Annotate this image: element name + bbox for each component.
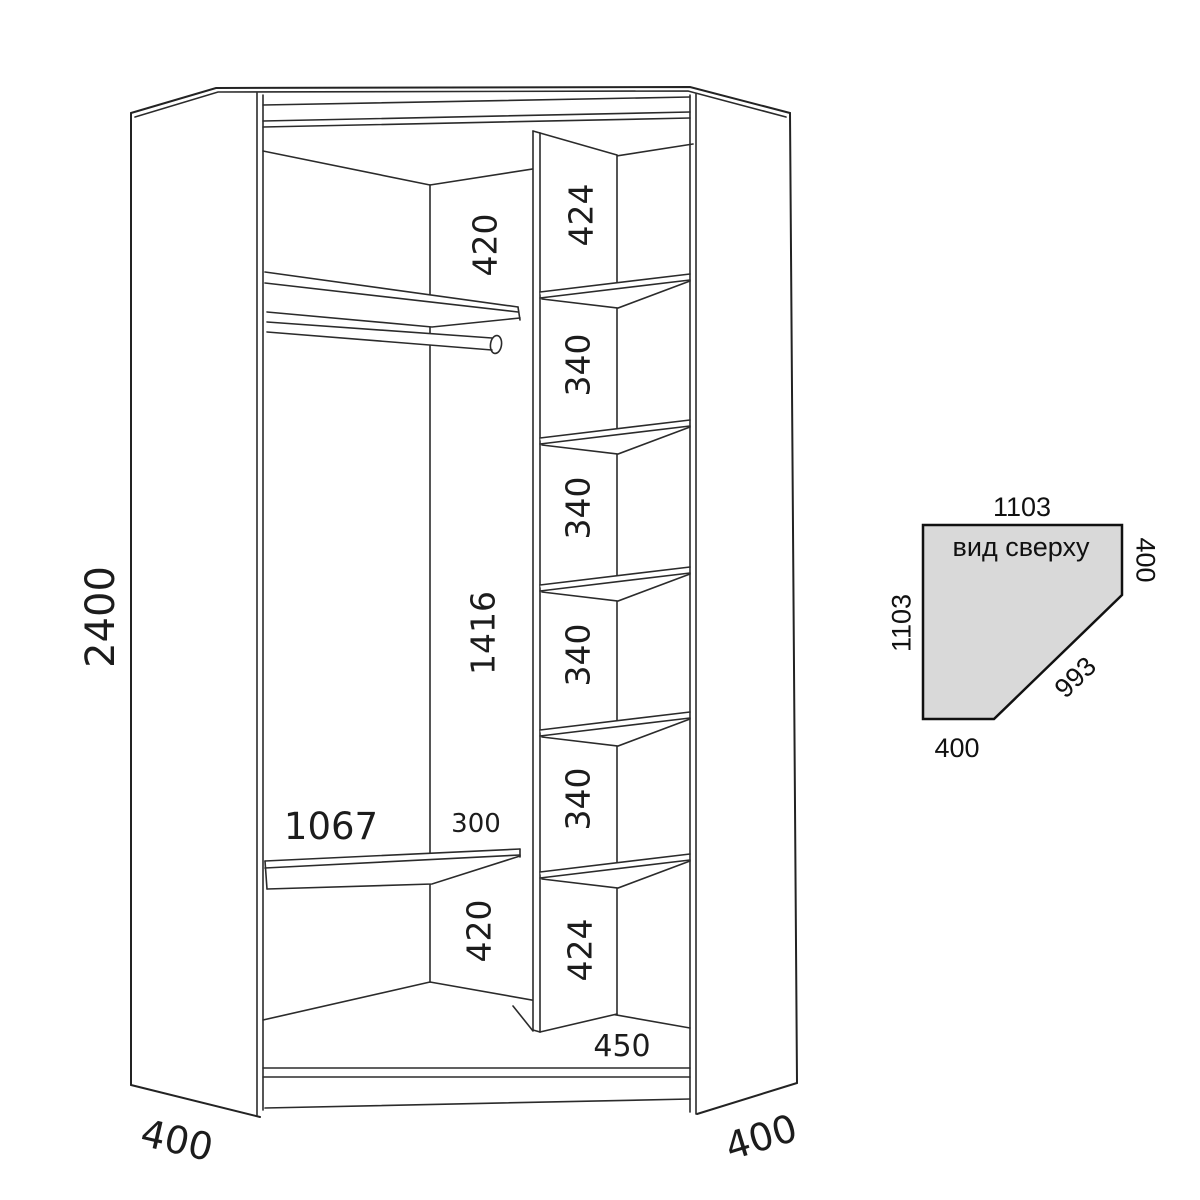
dim-right-col-0: 424 — [562, 184, 601, 247]
topview-dim-right: 400 — [1131, 537, 1161, 582]
corner-wardrobe-diagram: 2400 420 1416 420 1067 300 424 340 340 3… — [0, 0, 1200, 1200]
dim-right-col-1: 340 — [559, 334, 598, 397]
dim-bottom-space: 420 — [460, 900, 499, 963]
top-panel — [131, 87, 790, 127]
dim-right-col-4: 340 — [559, 768, 598, 831]
top-view: 1103 вид сверху 400 1103 993 400 — [886, 492, 1160, 763]
topview-dim-left: 1103 — [886, 594, 916, 652]
topview-dim-bottom: 400 — [934, 733, 979, 763]
top-shelf-board — [265, 272, 520, 327]
hanging-rod — [267, 322, 503, 354]
topview-title: вид сверху — [953, 532, 1090, 562]
dim-right-col-2: 340 — [559, 477, 598, 540]
dim-hanging-height: 1416 — [464, 591, 503, 675]
topview-dim-top: 1103 — [993, 492, 1051, 522]
dim-bottom-shelf-width: 450 — [593, 1029, 650, 1064]
dim-top-space: 420 — [466, 214, 505, 277]
dim-total-height: 2400 — [78, 566, 124, 668]
right-side-panel — [690, 94, 797, 1114]
dim-right-side-width: 400 — [720, 1106, 802, 1169]
dim-right-col-3: 340 — [559, 624, 598, 687]
dim-shelf-width: 1067 — [284, 805, 378, 848]
diagram-canvas: 2400 420 1416 420 1067 300 424 340 340 3… — [0, 0, 1200, 1200]
left-side-panel — [131, 93, 263, 1117]
front-view: 2400 420 1416 420 1067 300 424 340 340 3… — [78, 87, 802, 1170]
mid-shelf — [265, 849, 520, 889]
dim-right-col-5: 424 — [561, 919, 600, 982]
dim-left-side-width: 400 — [137, 1111, 218, 1170]
dim-shelf-depth: 300 — [451, 809, 501, 839]
plinth — [263, 1068, 690, 1108]
